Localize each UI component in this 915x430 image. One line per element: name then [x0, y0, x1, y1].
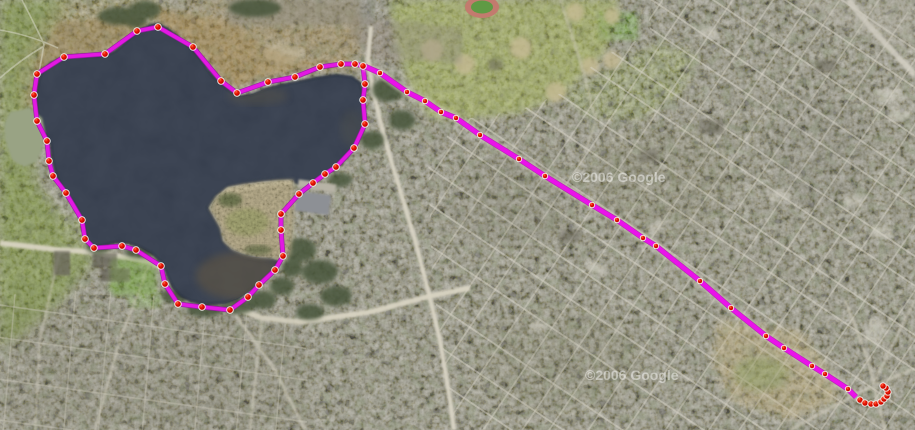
svg-text:©2006 Google: ©2006 Google: [585, 367, 679, 383]
svg-text:©2006 Google: ©2006 Google: [572, 169, 666, 185]
